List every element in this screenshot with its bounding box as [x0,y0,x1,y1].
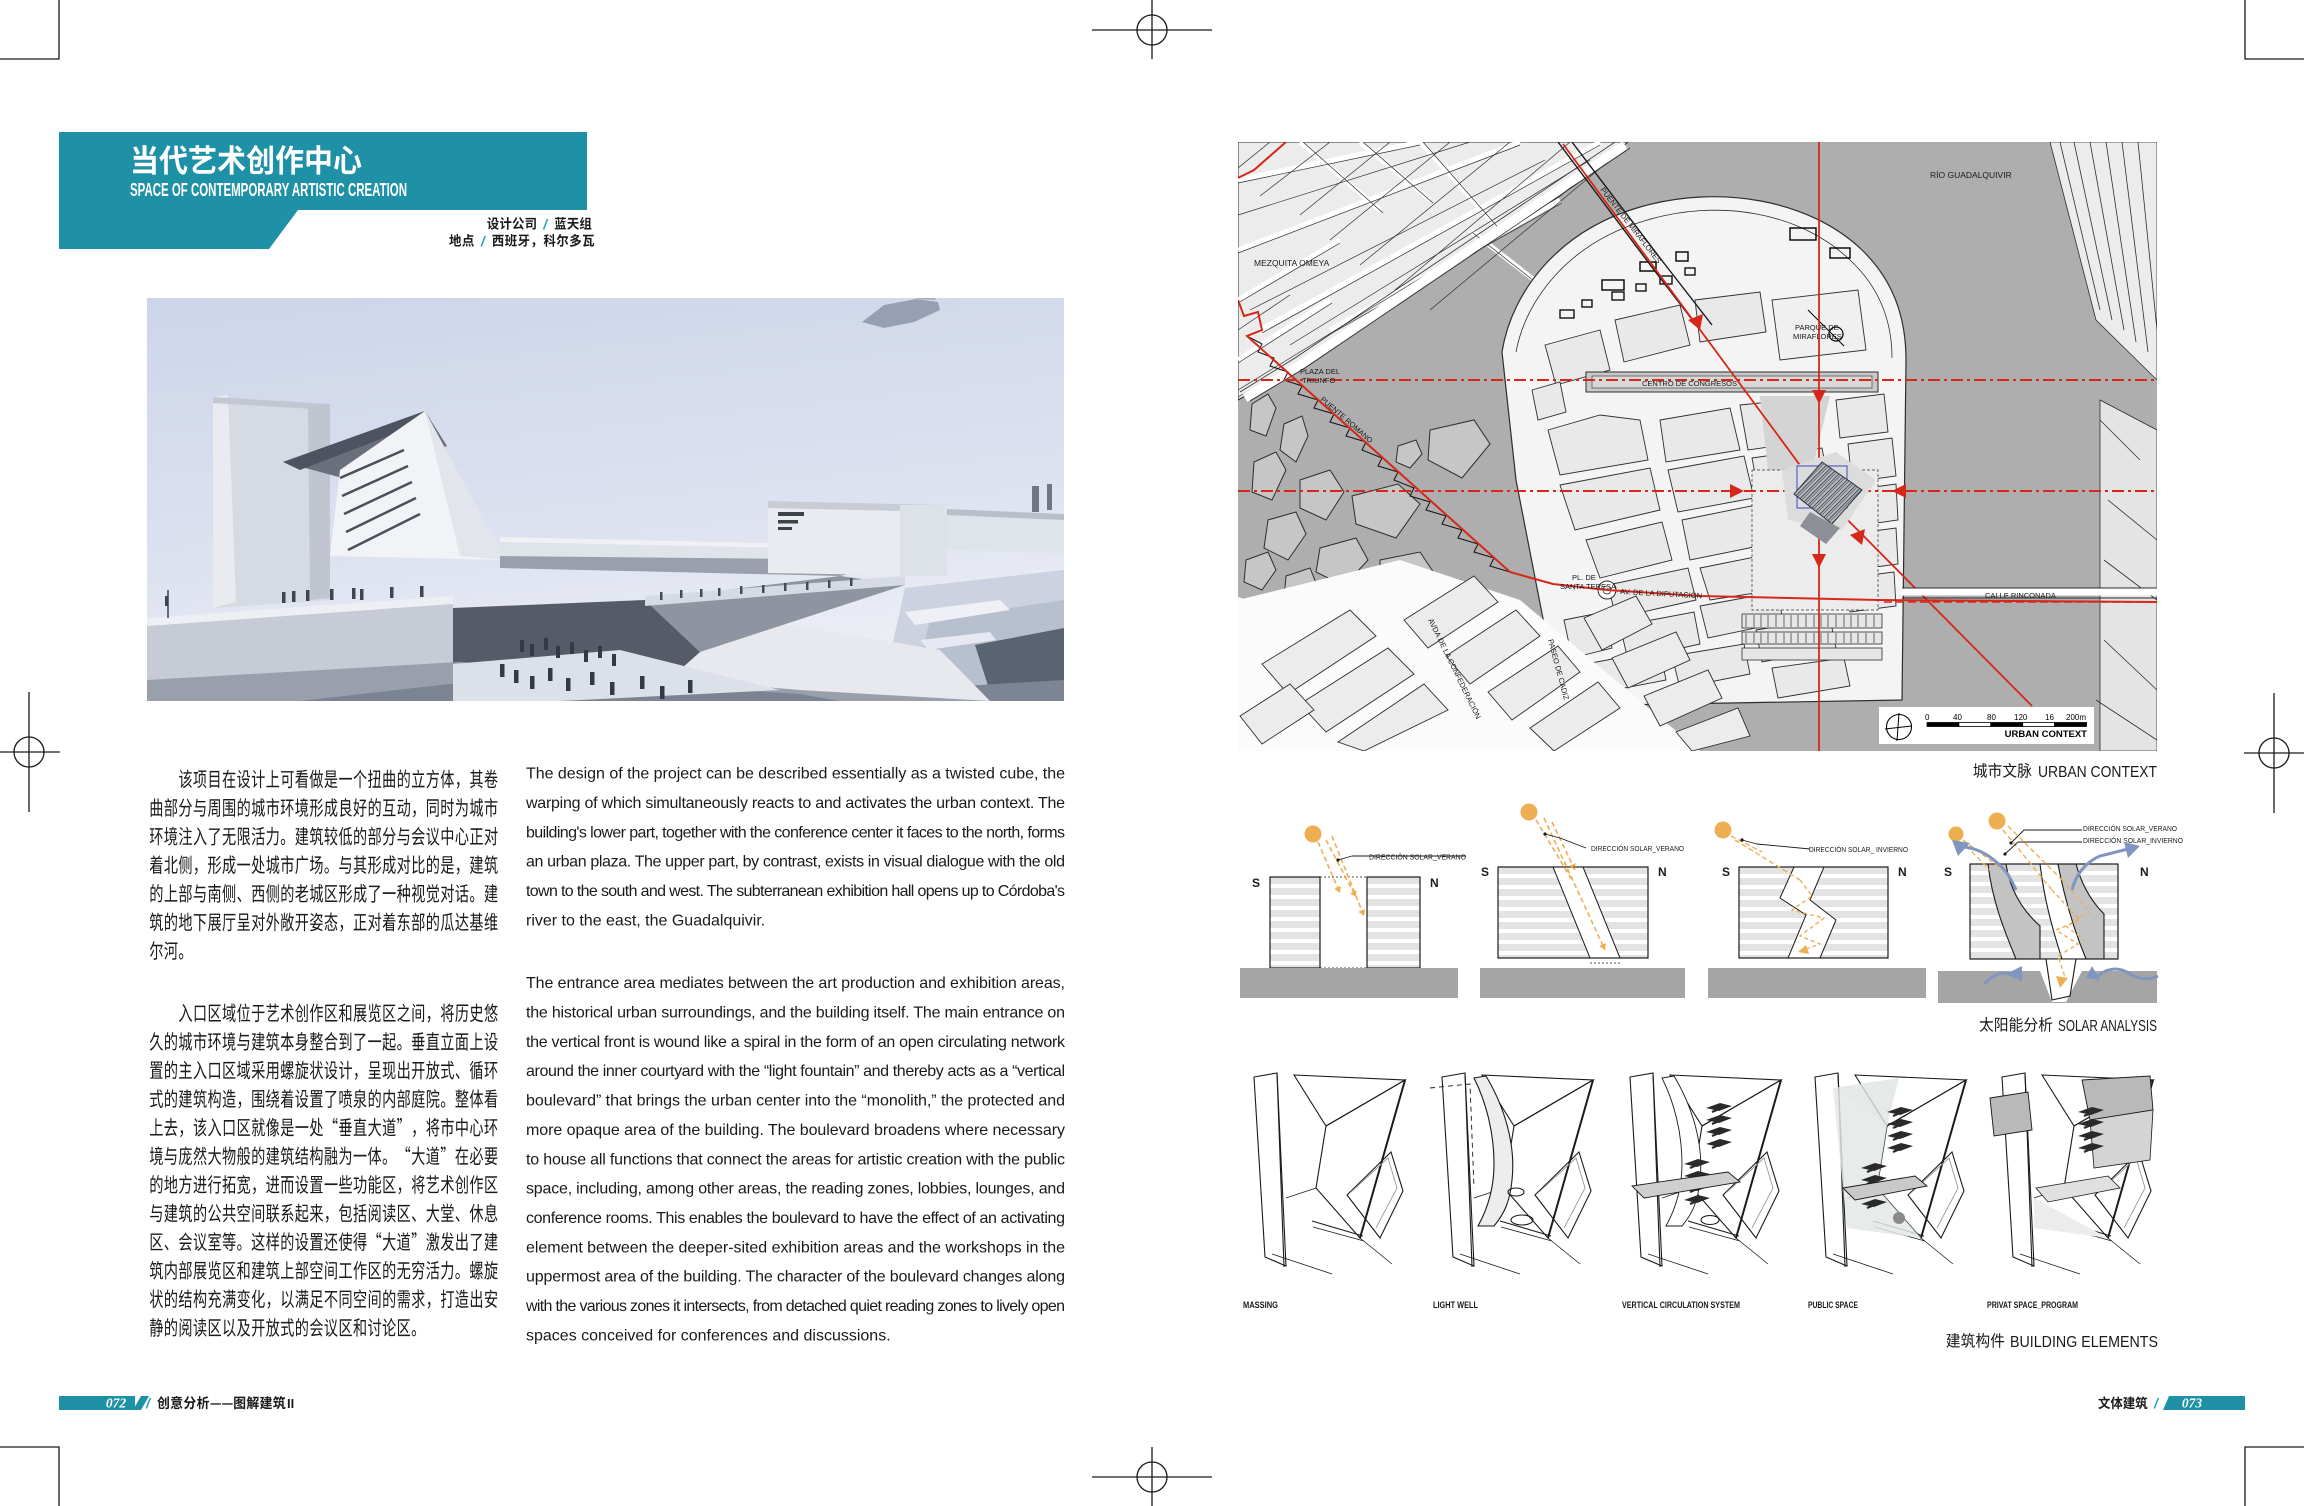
svg-text:spaces conceived for conferenc: spaces conceived for conferences and dis… [526,1327,891,1344]
svg-text:DIRECCIÓN SOLAR_VERANO: DIRECCIÓN SOLAR_VERANO [2083,824,2177,833]
svg-text:PLAZA DEL: PLAZA DEL [1300,367,1340,376]
svg-text:boulevard” that brings the urb: boulevard” that brings the urban center … [526,1093,1065,1110]
svg-text:warping of which simultaneousl: warping of which simultaneously reacts t… [525,795,1065,812]
svg-text:CALLE RINCONADA: CALLE RINCONADA [1985,591,2056,600]
svg-text:SPACE OF CONTEMPORARY ARTISTIC: SPACE OF CONTEMPORARY ARTISTIC CREATION [130,179,407,200]
svg-text:072: 072 [106,1396,127,1411]
svg-text:the vertical front is wound li: the vertical front is wound like a spira… [526,1034,1066,1051]
svg-text:S: S [1944,865,1952,879]
svg-text:SOLAR ANALYSIS: SOLAR ANALYSIS [2058,1018,2157,1035]
svg-text:TRIUNFO: TRIUNFO [1302,376,1335,385]
svg-text:BUILDING ELEMENTS: BUILDING ELEMENTS [2010,1334,2158,1351]
svg-text:MASSING: MASSING [1243,1300,1278,1310]
svg-text:DIRECCIÓN SOLAR_ INVIERNO: DIRECCIÓN SOLAR_ INVIERNO [1809,845,1908,854]
svg-text:II: II [287,1396,294,1411]
svg-text:200m: 200m [2066,713,2086,722]
svg-text:S: S [1252,876,1260,890]
svg-text:The entrance area mediates bet: The entrance area mediates between the a… [526,975,1065,992]
svg-text:/: / [480,233,487,249]
svg-text:120: 120 [2014,713,2028,722]
svg-text:40: 40 [1953,713,1962,722]
svg-text:DIRECCIÓN SOLAR_VERANO: DIRECCIÓN SOLAR_VERANO [1369,853,1466,862]
svg-text:80: 80 [1987,713,1996,722]
svg-text:PUBLIC SPACE: PUBLIC SPACE [1808,1300,1858,1310]
svg-text:conference rooms. This enables: conference rooms. This enables the boule… [526,1210,1065,1227]
svg-text:VERTICAL CIRCULATION SYSTEM: VERTICAL CIRCULATION SYSTEM [1622,1300,1740,1310]
svg-text:element between the deeper-sit: element between the deeper-sited exhibit… [526,1239,1065,1256]
svg-text:/: / [542,216,549,232]
svg-text:the historical urban surroundi: the historical urban surroundings, and t… [526,1005,1065,1022]
svg-text:building's lower part, togethe: building's lower part, together with the… [526,824,1065,841]
svg-text:RÍO GUADALQUIVIR: RÍO GUADALQUIVIR [1930,170,2012,180]
svg-text:S: S [1722,865,1730,879]
svg-text:N: N [1658,865,1667,879]
svg-text:uppermost area of the building: uppermost area of the building. The char… [526,1269,1065,1286]
svg-text:to house all functions that co: to house all functions that connect the … [526,1151,1065,1168]
svg-text:PRIVAT SPACE_PROGRAM: PRIVAT SPACE_PROGRAM [1987,1300,2078,1310]
svg-text:river to the east, the Guadalq: river to the east, the Guadalquivir. [526,912,765,929]
svg-text:/: / [2153,1395,2160,1411]
svg-text:0: 0 [1925,713,1930,722]
svg-text:073: 073 [2182,1396,2203,1411]
svg-text:LIGHT WELL: LIGHT WELL [1433,1300,1478,1310]
svg-text:with the various zones it inte: with the various zones it intersects, fr… [525,1298,1065,1315]
svg-text:DIRECCIÓN SOLAR_INVIERNO: DIRECCIÓN SOLAR_INVIERNO [2083,836,2183,845]
svg-text:URBAN CONTEXT: URBAN CONTEXT [2005,729,2088,740]
svg-text:URBAN CONTEXT: URBAN CONTEXT [2038,764,2157,781]
svg-text:The design of the project can: The design of the project can be describ… [526,766,1065,783]
svg-text:DIRECCIÓN SOLAR_VERANO: DIRECCIÓN SOLAR_VERANO [1591,844,1684,853]
svg-text:MIRAFLORES: MIRAFLORES [1793,332,1842,341]
svg-text:an urban plaza. The upper part: an urban plaza. The upper part, by contr… [526,854,1065,871]
svg-text:N: N [1430,876,1439,890]
svg-text:PARQUE DE: PARQUE DE [1795,323,1839,332]
svg-text:16: 16 [2045,713,2054,722]
svg-text:S: S [1481,865,1489,879]
svg-text:N: N [1898,865,1907,879]
svg-text:N: N [2140,865,2149,879]
svg-text:/: / [145,1395,152,1411]
svg-text:SANTA TERESA: SANTA TERESA [1560,582,1616,591]
svg-text:PL. DE: PL. DE [1572,573,1596,582]
svg-text:CENTRO DE CONGRESOS: CENTRO DE CONGRESOS [1642,379,1737,388]
svg-text:more opaque area of the buildi: more opaque area of the building. The bo… [526,1122,1065,1139]
svg-text:space, including, among other: space, including, among other areas, the… [526,1181,1065,1198]
svg-text:around the inner courtyard wit: around the inner courtyard with the “lig… [526,1063,1065,1080]
svg-text:town to the south and west. Th: town to the south and west. The subterra… [526,883,1065,900]
svg-text:MEZQUITA OMEYA: MEZQUITA OMEYA [1254,258,1330,268]
